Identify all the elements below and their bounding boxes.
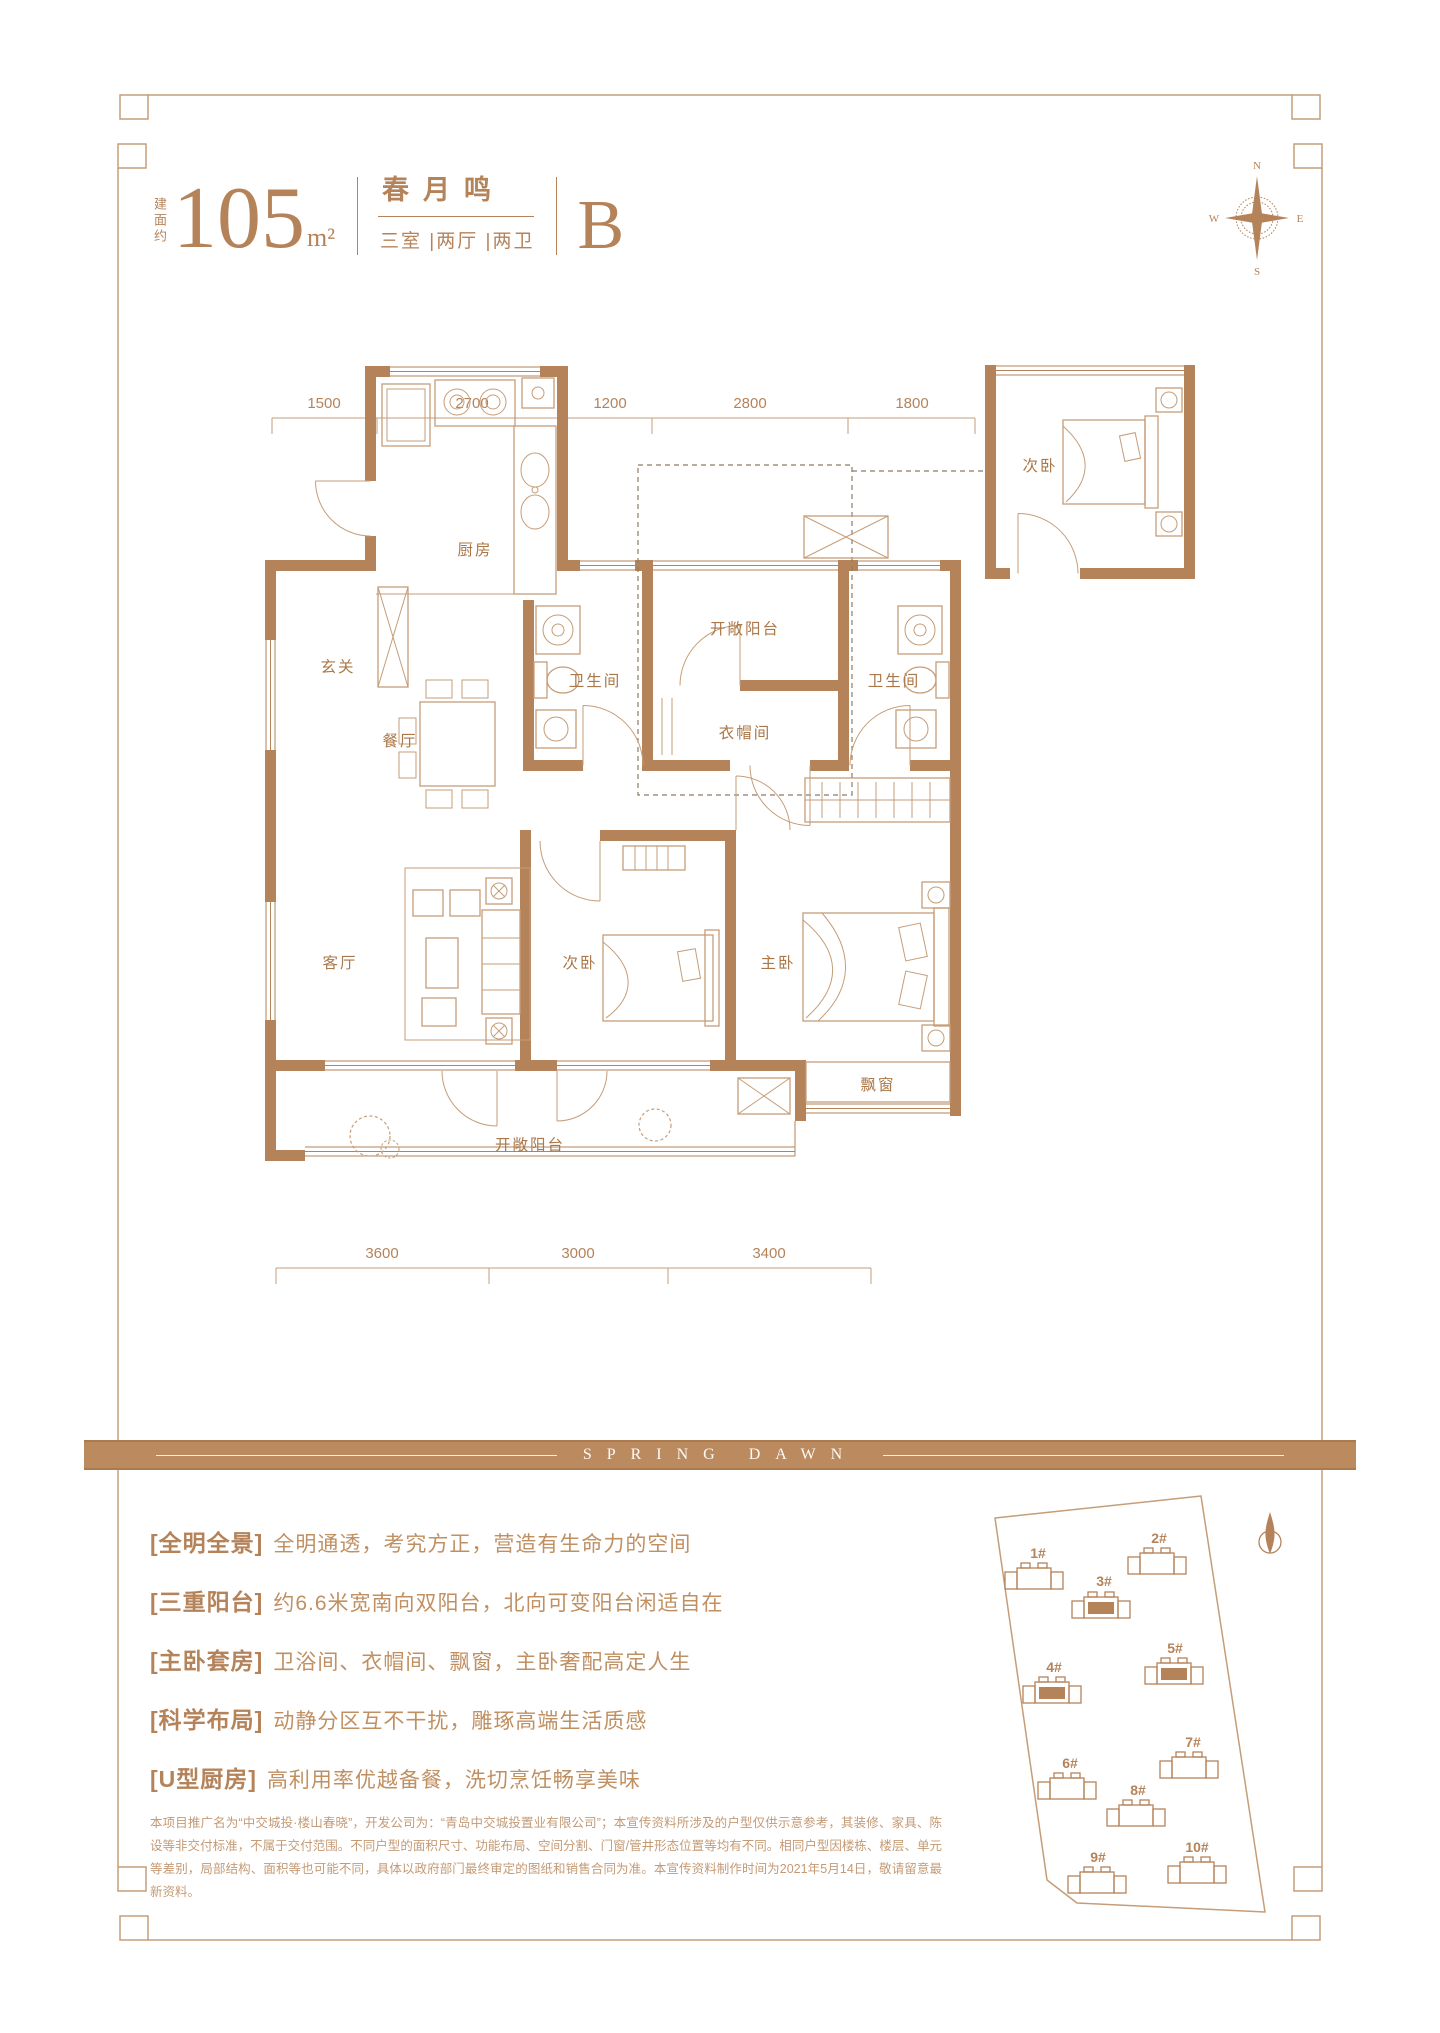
label-south-balcony: 开敞阳台 [495, 1136, 565, 1154]
dim-bottom-1: 3600 [365, 1245, 398, 1262]
feature-desc: 动静分区互不干扰，雕琢高端生活质感 [273, 1705, 647, 1735]
building-5-highlighted: 5# [1145, 1640, 1203, 1684]
area-value: 105 [173, 183, 305, 255]
plant [639, 1109, 671, 1141]
building-6: 6# [1038, 1755, 1096, 1799]
frame-corner-step [120, 95, 148, 119]
building-4-highlighted: 4# [1023, 1659, 1081, 1703]
sofa [482, 910, 520, 1014]
label-foyer: 玄关 [320, 658, 355, 676]
building-10: 10# [1168, 1839, 1226, 1883]
building-label: 8# [1130, 1782, 1146, 1798]
compass-e: E [1297, 213, 1304, 225]
area-unit: m² [307, 223, 335, 253]
cloakroom-shelves [662, 698, 672, 755]
armchair [413, 890, 443, 916]
building-label: 9# [1090, 1849, 1106, 1865]
label-bedroom-detached: 次卧 [1022, 457, 1057, 475]
master-bed [803, 913, 934, 1021]
dim-top-5: 1800 [895, 395, 928, 412]
building-label: 10# [1185, 1839, 1209, 1855]
feature-desc: 高利用率优越备餐，洗切烹饪畅享美味 [267, 1764, 641, 1794]
basin [896, 710, 936, 748]
kitchen-counter [514, 426, 556, 594]
feature-tag: [全明全景] [150, 1524, 263, 1558]
feature-tag: [科学布局] [150, 1701, 263, 1735]
label-cloak: 衣帽间 [719, 724, 772, 742]
floorplan-drawing: 1500 2700 1200 2800 1800 3600 3000 3400 [250, 350, 1210, 1290]
floorplan-brochure-page: 建面约 105 m² 春月鸣 三室 |两厅 |两卫 B N S W E [0, 0, 1440, 2033]
dimension-line-bottom: 3600 3000 3400 [276, 1245, 871, 1284]
rooms-spec: 三室 |两厅 |两卫 [378, 217, 534, 253]
shoe-cabinet [378, 587, 408, 687]
spring-dawn-banner: SPRING DAWN [84, 1440, 1356, 1470]
compass-n: N [1253, 160, 1261, 172]
feature-item: [全明全景] 全明通透，考究方正，营造有生命力的空间 [150, 1524, 724, 1558]
bed [603, 935, 713, 1021]
dim-top-3: 1200 [593, 395, 626, 412]
building-label: 1# [1030, 1545, 1046, 1561]
walls [265, 365, 1195, 1161]
living-furniture [405, 868, 530, 1044]
building-label: 7# [1185, 1734, 1201, 1750]
building-label: 2# [1151, 1530, 1167, 1546]
label-master: 主卧 [760, 954, 795, 972]
shelf [623, 846, 685, 870]
label-dining: 餐厅 [382, 732, 417, 750]
dining-table [420, 702, 495, 786]
fridge [382, 384, 430, 446]
detached-bedroom-furniture [1063, 388, 1182, 536]
building-label: 6# [1062, 1755, 1078, 1771]
coffee-table [426, 938, 458, 988]
building-1: 1# [1005, 1545, 1063, 1589]
compass-icon: N S W E [1205, 158, 1315, 282]
feature-tag: [U型厨房] [150, 1760, 257, 1794]
plant [350, 1116, 390, 1156]
feature-desc: 约6.6米宽南向双阳台，北向可变阳台闲适自在 [273, 1587, 723, 1617]
boiler [522, 378, 554, 408]
label-bath2: 卫生间 [868, 672, 921, 690]
compass-s: S [1254, 266, 1260, 278]
convertible-area-dashed [638, 465, 985, 795]
armchair [422, 998, 456, 1026]
header-divider [556, 177, 557, 255]
label-bay-window: 飘窗 [860, 1076, 895, 1094]
banner-rule-right [883, 1455, 1284, 1456]
unit-name-block: 春月鸣 三室 |两厅 |两卫 [378, 168, 534, 253]
building-2: 2# [1128, 1530, 1186, 1574]
feature-tag: [三重阳台] [150, 1583, 263, 1617]
feature-item: [U型厨房] 高利用率优越备餐，洗切烹饪畅享美味 [150, 1760, 724, 1794]
doors [316, 481, 1079, 1126]
banner-rule-left [156, 1455, 557, 1456]
area-prefix-label: 建面约 [150, 197, 169, 245]
feature-desc: 卫浴间、衣帽间、飘窗，主卧奢配高定人生 [273, 1646, 691, 1676]
dimension-line-top: 1500 2700 1200 2800 1800 [272, 395, 975, 434]
site-plan: 1# 2# 3# 4# 5# 6# 7# [965, 1470, 1335, 1950]
feature-tag: [主卧套房] [150, 1642, 263, 1676]
label-north-balcony: 开敞阳台 [710, 620, 780, 638]
feature-item: [三重阳台] 约6.6米宽南向双阳台，北向可变阳台闲适自在 [150, 1583, 724, 1617]
header: 建面约 105 m² 春月鸣 三室 |两厅 |两卫 B [150, 168, 624, 255]
balcony-items [350, 1078, 790, 1158]
building-label: 3# [1096, 1573, 1112, 1589]
feature-item: [主卧套房] 卫浴间、衣帽间、飘窗，主卧奢配高定人生 [150, 1642, 724, 1676]
building-8: 8# [1107, 1782, 1165, 1826]
building-label: 4# [1046, 1659, 1062, 1675]
elevator-shaft [804, 516, 888, 558]
label-bedroom2: 次卧 [562, 954, 597, 972]
location-pin-icon [1259, 1512, 1281, 1554]
toilet [534, 662, 547, 698]
dim-top-1: 1500 [307, 395, 340, 412]
label-kitchen: 厨房 [457, 541, 492, 559]
bedroom2-furniture [603, 846, 719, 1026]
sink-basin [521, 453, 549, 487]
basin [536, 710, 576, 748]
building-9: 9# [1068, 1849, 1126, 1893]
dim-bottom-2: 3000 [561, 1245, 594, 1262]
building-3-highlighted: 3# [1072, 1573, 1130, 1618]
building-7: 7# [1160, 1734, 1218, 1778]
feature-item: [科学布局] 动静分区互不干扰，雕琢高端生活质感 [150, 1701, 724, 1735]
banner-text: SPRING DAWN [583, 1446, 857, 1464]
nightstand [922, 1025, 950, 1051]
label-living: 客厅 [322, 954, 357, 972]
building-label: 5# [1167, 1640, 1183, 1656]
unit-name: 春月鸣 [378, 168, 534, 217]
disclaimer-text: 本项目推广名为“中交城投·楼山春晓”，开发公司为：“青岛中交城投置业有限公司”；… [150, 1812, 942, 1904]
unit-code: B [577, 196, 624, 256]
dim-top-4: 2800 [733, 395, 766, 412]
dim-top-2: 2700 [455, 395, 488, 412]
label-bath1: 卫生间 [569, 672, 622, 690]
feature-desc: 全明通透，考究方正，营造有生命力的空间 [273, 1528, 691, 1558]
armchair [450, 890, 480, 916]
header-divider [357, 177, 358, 255]
nightstand [922, 882, 950, 908]
master-furniture [803, 778, 950, 1051]
compass-w: W [1209, 213, 1220, 225]
dim-bottom-3: 3400 [752, 1245, 785, 1262]
toilet [936, 662, 949, 698]
feature-list: [全明全景] 全明通透，考究方正，营造有生命力的空间 [三重阳台] 约6.6米宽… [150, 1524, 724, 1819]
